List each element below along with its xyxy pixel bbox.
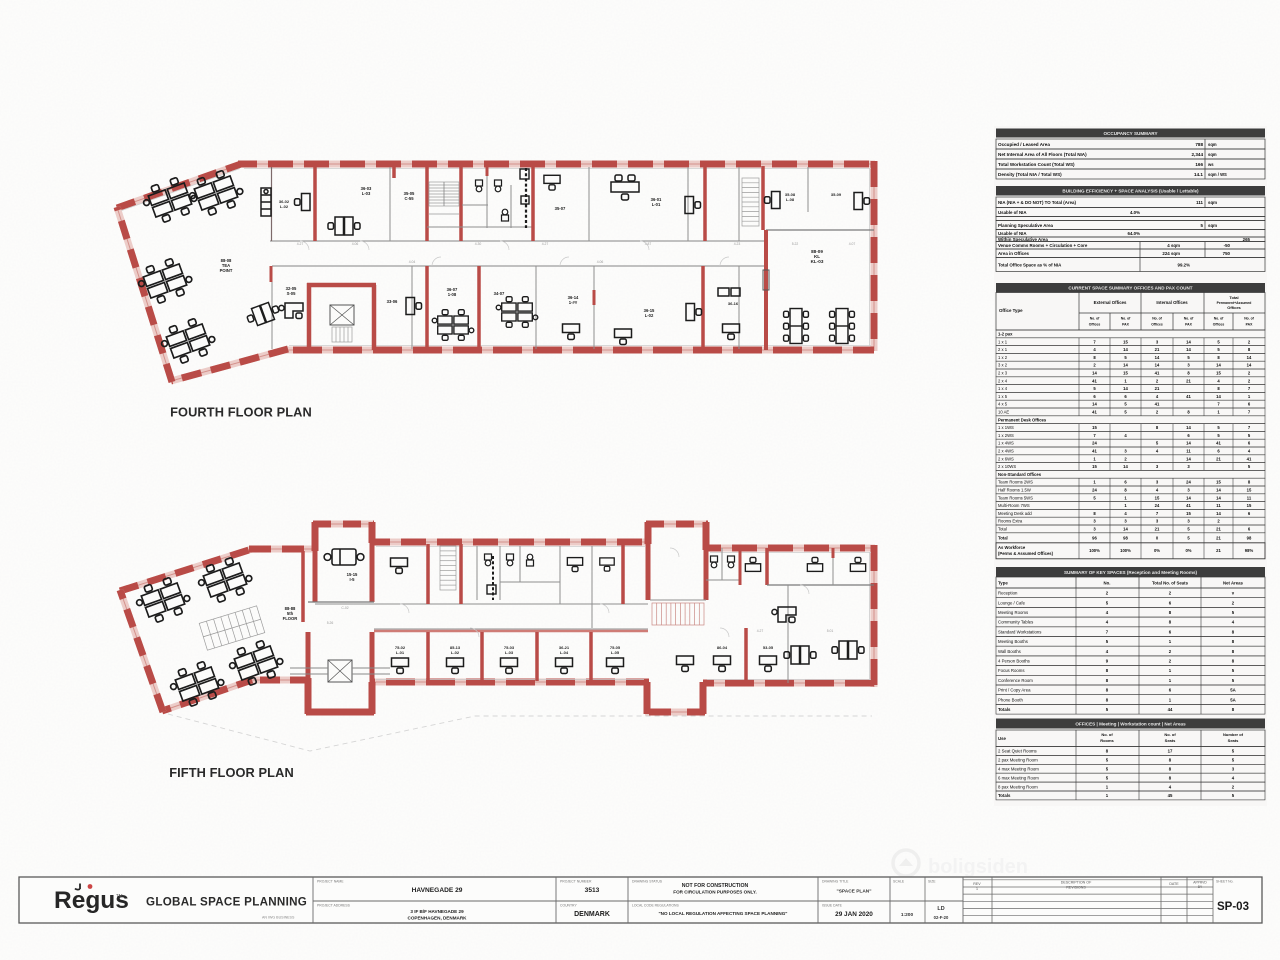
svg-text:21: 21 [1216, 527, 1221, 532]
svg-text:45: 45 [1168, 793, 1173, 798]
svg-text:Team Rooms 2WS: Team Rooms 2WS [998, 480, 1033, 485]
svg-text:Type: Type [998, 581, 1008, 586]
svg-text:14: 14 [1186, 339, 1191, 344]
svg-text:No. of: No. of [1121, 317, 1131, 321]
svg-text:2 x 10WS: 2 x 10WS [998, 464, 1016, 469]
svg-text:15: 15 [1155, 495, 1160, 500]
svg-text:No.: No. [1104, 581, 1111, 586]
svg-text:14: 14 [1155, 355, 1160, 360]
svg-text:No. of: No. of [1244, 317, 1254, 321]
svg-text:Total: Total [998, 527, 1007, 532]
svg-text:1-08: 1-08 [448, 292, 457, 297]
svg-text:14: 14 [1123, 527, 1128, 532]
svg-text:sqm: sqm [1208, 142, 1217, 147]
svg-text:34-07: 34-07 [494, 291, 505, 296]
svg-text:No. of: No. of [1164, 732, 1176, 737]
svg-text:Rooms Extra: Rooms Extra [998, 519, 1023, 524]
svg-text:PAX: PAX [1246, 323, 1253, 327]
svg-text:6 max Meeting Room: 6 max Meeting Room [998, 775, 1039, 780]
svg-text:ws: ws [1207, 162, 1214, 167]
svg-text:15: 15 [1123, 339, 1128, 344]
svg-text:14: 14 [1216, 488, 1221, 493]
svg-text:0%: 0% [1154, 548, 1160, 553]
svg-text:Totals: Totals [998, 793, 1011, 798]
svg-text:1 x 1WS: 1 x 1WS [998, 425, 1014, 430]
svg-text:Total No. of Seats: Total No. of Seats [1152, 581, 1189, 586]
svg-text:33-06: 33-06 [387, 299, 398, 304]
svg-text:4.0%: 4.0% [1130, 210, 1140, 215]
svg-text:2 Seat Quiet Rooms: 2 Seat Quiet Rooms [998, 749, 1037, 754]
svg-text:FLOOR: FLOOR [283, 616, 298, 621]
svg-text:Offices: Offices [1151, 323, 1163, 327]
svg-text:5.01: 5.01 [827, 629, 834, 633]
svg-text:98: 98 [1247, 535, 1252, 540]
svg-text:sqm: sqm [1208, 200, 1217, 205]
svg-text:15: 15 [1092, 425, 1097, 430]
svg-text:44: 44 [1168, 707, 1173, 712]
svg-text:15: 15 [1186, 511, 1191, 516]
svg-text:-50: -50 [1224, 243, 1231, 248]
svg-text:2 x 1: 2 x 1 [998, 347, 1008, 352]
svg-text:L-02: L-02 [451, 650, 460, 655]
svg-text:15: 15 [1247, 488, 1252, 493]
svg-text:4.07: 4.07 [849, 242, 856, 246]
svg-text:5A: 5A [1230, 697, 1236, 702]
svg-text:14: 14 [1216, 363, 1221, 368]
svg-text:As Workforce: As Workforce [998, 545, 1026, 550]
svg-text:No. of: No. of [1152, 317, 1162, 321]
svg-text:1 x 4WS: 1 x 4WS [998, 441, 1014, 446]
svg-text:Area in Offices: Area in Offices [998, 251, 1030, 256]
svg-text:4.23: 4.23 [734, 242, 741, 246]
svg-text:ISSUE DATE: ISSUE DATE [822, 904, 843, 908]
svg-text:1-2 pax: 1-2 pax [998, 332, 1013, 337]
svg-text:4 sqm: 4 sqm [1167, 243, 1180, 248]
svg-text:3513: 3513 [585, 887, 600, 894]
svg-text:29 JAN 2020: 29 JAN 2020 [835, 911, 873, 918]
svg-text:PROJECT ADDRESS: PROJECT ADDRESS [317, 904, 351, 908]
svg-text:AN IWG BUSINESS: AN IWG BUSINESS [262, 916, 295, 920]
svg-text:Usable of NIA: Usable of NIA [998, 231, 1027, 236]
svg-text:4 max Meeting Room: 4 max Meeting Room [998, 766, 1039, 771]
svg-text:Offices: Offices [1227, 305, 1241, 310]
svg-text:14: 14 [1247, 363, 1252, 368]
svg-text:Usable of NIA: Usable of NIA [998, 210, 1027, 215]
svg-text:L-08: L-08 [786, 197, 795, 202]
svg-text:2 x 4WS: 2 x 4WS [998, 449, 1014, 454]
svg-text:NOT FOR CONSTRUCTION: NOT FOR CONSTRUCTION [682, 883, 749, 889]
svg-text:41: 41 [1092, 378, 1097, 383]
svg-text:100%: 100% [1120, 548, 1131, 553]
svg-text:3 x 2: 3 x 2 [998, 363, 1008, 368]
svg-text:LD: LD [937, 906, 944, 912]
svg-text:Half Rooms 1.5W: Half Rooms 1.5W [998, 488, 1031, 493]
svg-text:1-##: 1-## [569, 300, 578, 305]
svg-text:DATE: DATE [1169, 882, 1179, 886]
svg-text:COPENHAGEN, DENMARK: COPENHAGEN, DENMARK [408, 916, 468, 921]
svg-text:No. of: No. of [1184, 317, 1194, 321]
svg-text:4.30: 4.30 [475, 242, 482, 246]
svg-text:Focus Rooms: Focus Rooms [998, 668, 1025, 673]
svg-text:No. of: No. of [1090, 317, 1100, 321]
svg-text:L-03: L-03 [505, 650, 514, 655]
svg-text:Community Tables: Community Tables [998, 620, 1033, 625]
svg-text:41: 41 [1092, 410, 1097, 415]
svg-text:DRAWING STATUS: DRAWING STATUS [632, 880, 663, 884]
svg-text:35-07: 35-07 [555, 206, 566, 211]
svg-text:15: 15 [1216, 371, 1221, 376]
svg-text:14.1: 14.1 [1194, 172, 1203, 177]
svg-text:41: 41 [1186, 503, 1191, 508]
svg-text:Phone Booth: Phone Booth [998, 697, 1023, 702]
svg-text:L-02: L-02 [645, 313, 654, 318]
svg-text:Occupied / Leased Area: Occupied / Leased Area [998, 142, 1050, 147]
svg-text:5.26: 5.26 [327, 621, 334, 625]
svg-text:14: 14 [1092, 371, 1097, 376]
svg-text:21: 21 [1216, 456, 1221, 461]
svg-text:24: 24 [1186, 480, 1191, 485]
svg-text:15: 15 [1123, 371, 1128, 376]
svg-text:41: 41 [1155, 371, 1160, 376]
svg-text:41: 41 [1155, 402, 1160, 407]
svg-text:Multi-Room 7WS: Multi-Room 7WS [998, 503, 1030, 508]
svg-text:4 Person Booths: 4 Person Booths [998, 658, 1030, 663]
svg-text:10 AE: 10 AE [998, 410, 1009, 415]
svg-text:14: 14 [1155, 363, 1160, 368]
svg-text:8 pax Meeting Room: 8 pax Meeting Room [998, 784, 1038, 789]
svg-text:No. of: No. of [1101, 732, 1113, 737]
svg-text:99.2%: 99.2% [1178, 262, 1191, 267]
svg-text:sqm / WS: sqm / WS [1208, 172, 1227, 177]
svg-text:SP-03: SP-03 [1217, 901, 1249, 913]
svg-text:14: 14 [1123, 363, 1128, 368]
svg-text:2 x 6WS: 2 x 6WS [998, 456, 1014, 461]
svg-text:Permanent Desk Offices: Permanent Desk Offices [998, 417, 1047, 422]
svg-text:Offices: Offices [1213, 323, 1225, 327]
svg-text:Number of: Number of [1223, 732, 1244, 737]
svg-text:1 x 2WS: 1 x 2WS [998, 433, 1014, 438]
svg-text:TM: TM [116, 893, 123, 898]
svg-text:Wall Booths: Wall Booths [998, 649, 1021, 654]
svg-text:96: 96 [1092, 535, 1097, 540]
svg-text:BUILDING EFFICIENCY + SPACE AN: BUILDING EFFICIENCY + SPACE ANALYSIS (Us… [1062, 189, 1199, 194]
svg-text:boligsiden: boligsiden [928, 856, 1028, 878]
svg-text:HAVNEGADE 29: HAVNEGADE 29 [412, 887, 463, 894]
svg-text:C-02: C-02 [341, 606, 348, 610]
svg-text:COUNTRY: COUNTRY [560, 904, 577, 908]
svg-text:2 x 4: 2 x 4 [998, 378, 1008, 383]
svg-text:41: 41 [1092, 449, 1097, 454]
svg-text:14: 14 [1216, 394, 1221, 399]
svg-text:15: 15 [1247, 503, 1252, 508]
svg-text:3 IF B/F HAVNEGADE 29: 3 IF B/F HAVNEGADE 29 [410, 909, 464, 914]
svg-text:4.04: 4.04 [409, 260, 416, 264]
svg-text:21: 21 [1216, 535, 1221, 540]
svg-text:C-55: C-55 [404, 196, 414, 201]
svg-text:4.27: 4.27 [757, 629, 764, 633]
svg-text:FIFTH FLOOR PLAN: FIFTH FLOOR PLAN [169, 765, 294, 780]
svg-text:"NO LOCAL REGULATION AFFECTING: "NO LOCAL REGULATION AFFECTING SPACE PLA… [659, 911, 788, 916]
svg-text:Internal Offices: Internal Offices [1156, 300, 1188, 305]
svg-text:64.0%: 64.0% [1128, 231, 1141, 236]
svg-text:53-05: 53-05 [763, 645, 774, 650]
svg-text:11: 11 [1216, 503, 1221, 508]
svg-text:PROJECT NUMBER: PROJECT NUMBER [560, 880, 592, 884]
svg-text:Seats: Seats [1228, 738, 1239, 743]
svg-text:2 pax Meeting Room: 2 pax Meeting Room [998, 758, 1038, 763]
svg-text:LOCAL CODE REGULATIONS: LOCAL CODE REGULATIONS [632, 904, 679, 908]
svg-text:Offices: Offices [1089, 323, 1101, 327]
svg-text:Net Areas: Net Areas [1223, 581, 1244, 586]
svg-text:1 x 5: 1 x 5 [998, 394, 1008, 399]
svg-text:98%: 98% [1245, 548, 1254, 553]
svg-text:Rooms: Rooms [1100, 738, 1114, 743]
svg-text:Lounge / Cafe: Lounge / Cafe [998, 600, 1026, 605]
svg-text:14: 14 [1123, 464, 1128, 469]
svg-text:1 x 1: 1 x 1 [998, 339, 1008, 344]
svg-text:98: 98 [1123, 535, 1128, 540]
svg-text:L-01: L-01 [652, 202, 661, 207]
svg-text:Standard Workstations: Standard Workstations [998, 629, 1041, 634]
svg-text:14: 14 [1092, 402, 1097, 407]
svg-text:External Offices: External Offices [1094, 300, 1127, 305]
svg-text:11: 11 [1186, 449, 1191, 454]
svg-text:REVISIONS: REVISIONS [1066, 886, 1086, 890]
svg-text:4.27: 4.27 [297, 242, 304, 246]
svg-text:FOURTH FLOOR PLAN: FOURTH FLOOR PLAN [170, 405, 312, 420]
svg-text:SHEET No.: SHEET No. [1216, 880, 1234, 884]
svg-text:(Perms & Assumed Offices): (Perms & Assumed Offices) [998, 551, 1054, 556]
svg-text:Reception: Reception [998, 591, 1018, 596]
svg-text:Total Workstation Count (Total: Total Workstation Count (Total WS) [998, 162, 1075, 167]
svg-text:Planning Speculative Area: Planning Speculative Area [998, 223, 1054, 228]
svg-text:"SPACE PLAN": "SPACE PLAN" [836, 889, 871, 895]
svg-text:2 x 3: 2 x 3 [998, 371, 1008, 376]
svg-text:1:200: 1:200 [901, 912, 914, 918]
svg-text:Regus: Regus [54, 887, 129, 914]
svg-text:41: 41 [1247, 456, 1252, 461]
svg-text:PAX: PAX [1185, 323, 1192, 327]
svg-text:24: 24 [1155, 503, 1160, 508]
svg-text:1 x 2: 1 x 2 [998, 355, 1008, 360]
svg-text:CURRENT SPACE SUMMARY OFFICES: CURRENT SPACE SUMMARY OFFICES AND PAX CO… [1068, 286, 1192, 291]
svg-text:Non-Standard Offices: Non-Standard Offices [998, 472, 1042, 477]
svg-text:14: 14 [1247, 355, 1252, 360]
svg-text:SCALE: SCALE [893, 880, 905, 884]
svg-text:750: 750 [1223, 251, 1231, 256]
svg-text:5.22: 5.22 [792, 242, 799, 246]
svg-text:Total Office Space as % of NIA: Total Office Space as % of NIA [998, 262, 1062, 267]
svg-text:Meeting Booths: Meeting Booths [998, 639, 1028, 644]
svg-text:POINT: POINT [220, 268, 233, 273]
svg-text:14: 14 [1123, 347, 1128, 352]
svg-text:0%: 0% [1185, 548, 1191, 553]
svg-text:KL-03: KL-03 [811, 259, 824, 264]
svg-text:OFFICES | Meeting | Workst: OFFICES | Meeting | Workstation count | … [1075, 721, 1186, 726]
svg-text:L-05: L-05 [611, 650, 620, 655]
svg-text:Total: Total [1229, 295, 1238, 300]
svg-text:4.06: 4.06 [597, 260, 604, 264]
svg-text:Use: Use [998, 736, 1006, 741]
svg-text:REV: REV [973, 882, 981, 886]
svg-text:21: 21 [1155, 527, 1160, 532]
svg-text:Team Rooms 5WS: Team Rooms 5WS [998, 495, 1033, 500]
svg-text:I-5: I-5 [350, 577, 356, 582]
svg-text:21: 21 [1155, 347, 1160, 352]
svg-text:SIZE: SIZE [928, 880, 936, 884]
svg-text:224 sqm: 224 sqm [1162, 251, 1180, 256]
svg-text:166: 166 [1195, 162, 1203, 167]
svg-text:11: 11 [1247, 495, 1252, 500]
svg-text:Meeting Desk add: Meeting Desk add [998, 511, 1032, 516]
svg-text:Total: Total [998, 535, 1008, 540]
svg-text:FOR CIRCULATION PURPOSES ONLY.: FOR CIRCULATION PURPOSES ONLY. [673, 890, 756, 895]
svg-text:2,344: 2,344 [1192, 152, 1204, 157]
svg-text:S-05: S-05 [287, 291, 297, 296]
svg-text:788: 788 [1195, 142, 1203, 147]
svg-text:L-03: L-03 [362, 191, 371, 196]
svg-text:14: 14 [1216, 511, 1221, 516]
svg-text:sqm: sqm [1208, 152, 1217, 157]
svg-text:NIA (NIA + & DO NOT) TO Total: NIA (NIA + & DO NOT) TO Total (Area) [998, 200, 1076, 205]
svg-text:Meeting Rooms: Meeting Rooms [998, 610, 1028, 615]
svg-text:PROJECT NAME: PROJECT NAME [317, 880, 344, 884]
svg-text:No. of: No. of [1214, 317, 1224, 321]
svg-text:100%: 100% [1089, 548, 1100, 553]
svg-text:L-04: L-04 [560, 650, 569, 655]
svg-text:14: 14 [1216, 495, 1221, 500]
svg-text:Venue Comms Rooms + Circulatio: Venue Comms Rooms + Circulation + Core [998, 243, 1088, 248]
svg-text:41: 41 [1186, 394, 1191, 399]
svg-text:DENMARK: DENMARK [574, 911, 610, 918]
svg-text:Totals: Totals [998, 707, 1011, 712]
svg-text:DESCRIPTION OF: DESCRIPTION OF [1061, 881, 1092, 885]
svg-text:111: 111 [1196, 200, 1203, 205]
svg-text:21: 21 [1186, 378, 1191, 383]
svg-text:GLOBAL SPACE PLANNING: GLOBAL SPACE PLANNING [146, 896, 307, 909]
svg-text:4 x 5: 4 x 5 [998, 402, 1008, 407]
svg-text:41: 41 [1216, 441, 1221, 446]
svg-text:17: 17 [1168, 749, 1173, 754]
svg-text:Density (Total NIA / Total WS): Density (Total NIA / Total WS) [998, 172, 1062, 177]
svg-text:L-02: L-02 [280, 204, 289, 209]
svg-text:PAX: PAX [1122, 323, 1129, 327]
svg-text:Seats: Seats [1165, 738, 1176, 743]
svg-text:14: 14 [1186, 347, 1191, 352]
svg-text:4.27: 4.27 [542, 242, 549, 246]
svg-text:36-16: 36-16 [728, 301, 739, 306]
svg-text:15: 15 [1216, 480, 1221, 485]
svg-text:21: 21 [1216, 548, 1221, 553]
svg-text:1 x 4: 1 x 4 [998, 386, 1008, 391]
svg-text:14: 14 [1186, 425, 1191, 430]
svg-text:APPRVD: APPRVD [1193, 881, 1207, 885]
svg-text:14: 14 [1186, 495, 1191, 500]
svg-text:SUMMARY OF KEY SPACES (Recepti: SUMMARY OF KEY SPACES (Reception and Mee… [1064, 570, 1198, 575]
svg-text:1: 1 [976, 887, 978, 891]
svg-text:Print / Copy Area: Print / Copy Area [998, 688, 1031, 693]
svg-text:86-04: 86-04 [717, 645, 728, 650]
svg-text:L-01: L-01 [396, 650, 405, 655]
svg-text:Conference Room: Conference Room [998, 678, 1033, 683]
svg-text:14: 14 [1123, 386, 1128, 391]
svg-text:24: 24 [1092, 441, 1097, 446]
svg-text:14: 14 [1186, 441, 1191, 446]
svg-text:DRAWING TITLE: DRAWING TITLE [822, 880, 849, 884]
svg-text:15: 15 [1092, 464, 1097, 469]
svg-text:OCCUPANCY SUMMARY: OCCUPANCY SUMMARY [1103, 131, 1157, 136]
svg-text:14: 14 [1186, 456, 1191, 461]
svg-text:5A: 5A [1230, 688, 1236, 693]
svg-text:24: 24 [1092, 488, 1097, 493]
svg-text:35-09: 35-09 [831, 192, 842, 197]
svg-text:21: 21 [1155, 386, 1160, 391]
svg-text:02-F-20: 02-F-20 [934, 915, 949, 920]
svg-text:Office Type: Office Type [999, 308, 1023, 313]
svg-text:Net Internal Area of All Floor: Net Internal Area of All Floors (Total N… [998, 152, 1087, 157]
svg-text:sqm: sqm [1208, 223, 1217, 228]
svg-text:4.06: 4.06 [352, 242, 359, 246]
